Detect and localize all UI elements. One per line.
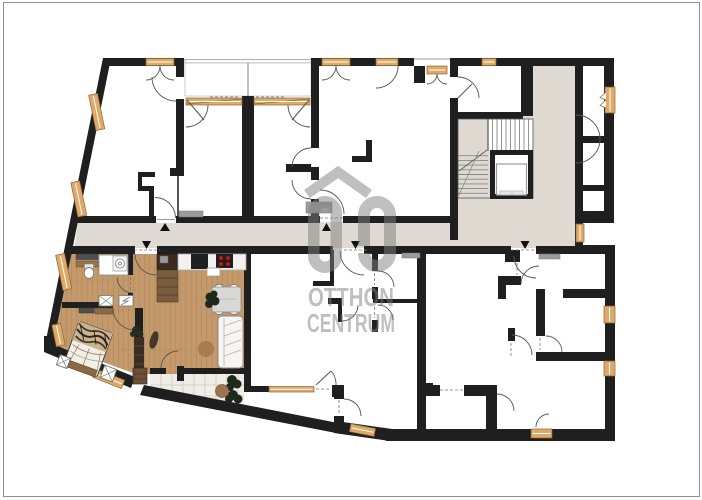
svg-text:CENTRUM: CENTRUM [307, 308, 395, 338]
